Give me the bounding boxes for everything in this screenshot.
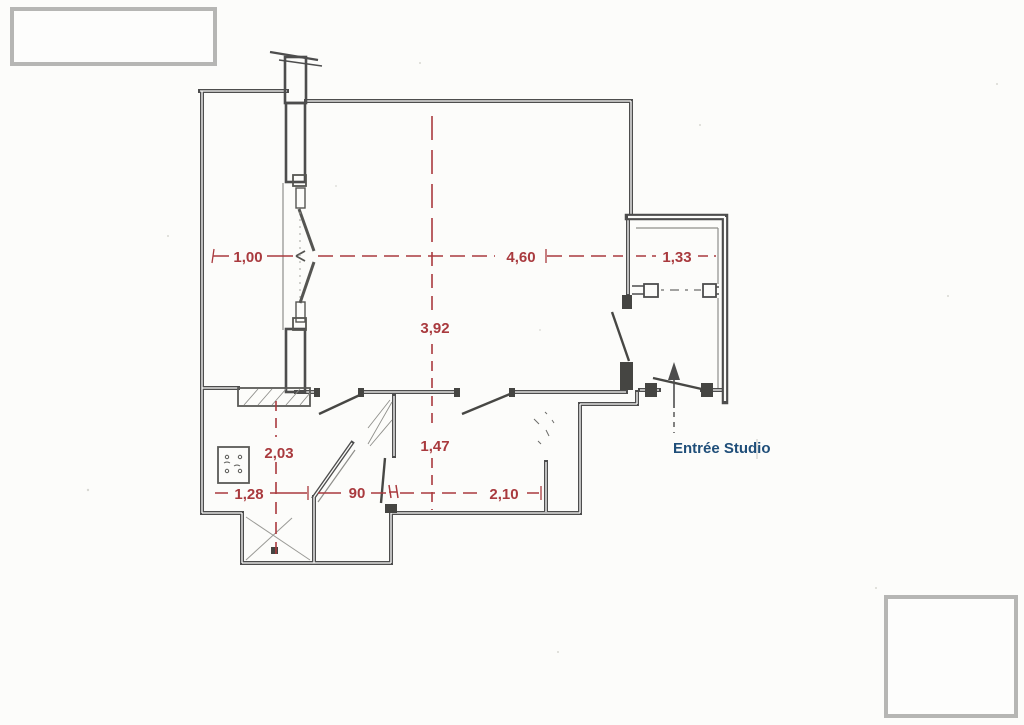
- dim-corridor-width: 2,10: [489, 486, 518, 503]
- toilet: [328, 516, 366, 560]
- bench-unit: [438, 484, 488, 510]
- partition-jamb-right: [703, 284, 716, 297]
- dim-balcony-width: 1,00: [233, 249, 262, 266]
- door-jambs: [314, 295, 713, 513]
- hall-door-leaf: [319, 394, 362, 414]
- entrance-threshold: [647, 397, 722, 408]
- floor-plan-drawing: 1,00 4,60 1,33 3,92 2,03 1,47 1,28 90 2,…: [0, 0, 1024, 725]
- door-leaves: [319, 312, 706, 503]
- inner-wall-lines: [283, 183, 718, 502]
- paper-specks: [87, 62, 998, 653]
- appliance-mark: [271, 547, 278, 554]
- dim-living-depth: 3,92: [420, 320, 449, 337]
- casement-leaf-bottom: [300, 262, 314, 303]
- french-window: [293, 175, 314, 330]
- closet: [366, 396, 394, 448]
- hinge-mark: [389, 485, 398, 498]
- entrance-arrow-head: [668, 362, 680, 380]
- window-wall-piers: [286, 103, 305, 392]
- entrance-label: Entrée Studio: [673, 440, 771, 457]
- partition-jamb-left: [644, 284, 658, 297]
- window-sash-bottom: [296, 302, 305, 322]
- window-sash-top: [296, 188, 305, 208]
- shower-door-leaf: [462, 394, 510, 414]
- chimney: [270, 52, 322, 103]
- shower: [512, 397, 570, 462]
- wc-door-leaf: [381, 458, 385, 503]
- dim-kitchen-depth: 2,03: [264, 445, 293, 462]
- casement-leaf-top: [299, 209, 314, 251]
- dim-door-width: 90: [349, 485, 366, 502]
- dim-living-width: 4,60: [506, 249, 535, 266]
- entry-room-door-leaf: [612, 312, 629, 361]
- kitchen-stove-unit: [218, 447, 249, 483]
- entry-partition: [632, 284, 719, 297]
- dim-hall-depth: 1,47: [420, 438, 449, 455]
- scanned-floor-plan-page: 1,00 4,60 1,33 3,92 2,03 1,47 1,28 90 2,…: [0, 0, 1024, 725]
- shower-drain: [554, 404, 560, 410]
- dim-kitchen-width: 1,28: [234, 486, 263, 503]
- entrance-arrow: [668, 362, 680, 433]
- dim-entry-width: 1,33: [662, 249, 691, 266]
